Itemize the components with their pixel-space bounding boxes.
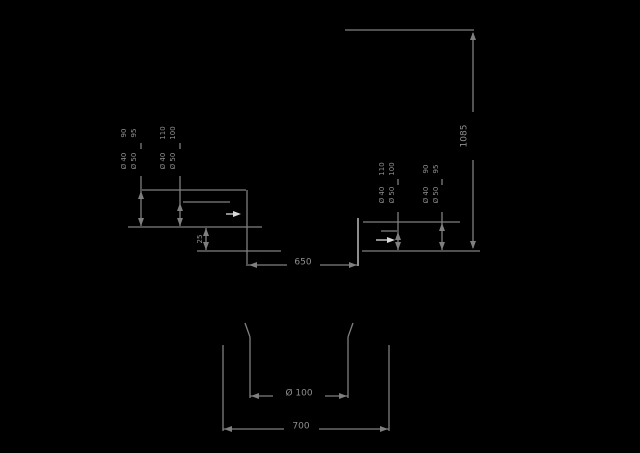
leader-arrow-left-icon bbox=[233, 211, 241, 217]
hole-right-extension-tick bbox=[348, 323, 353, 337]
leader-arrow-right-icon bbox=[387, 237, 395, 243]
right-inner-height-b: 100 bbox=[388, 162, 396, 175]
left-outer-height-a: 90 bbox=[120, 129, 128, 138]
left-inner-height-b: 100 bbox=[169, 126, 177, 139]
left-outer-arrow-bottom-icon bbox=[138, 218, 144, 226]
right-inner-diameter-b: Ø 50 bbox=[388, 187, 396, 204]
hole-arrow-right-icon bbox=[339, 393, 347, 399]
overall-dim-arrow-bottom-icon bbox=[470, 241, 476, 249]
overall-dim-arrow-top-icon bbox=[470, 32, 476, 40]
right-outer-height-a: 90 bbox=[422, 165, 430, 174]
step-height-label: 25 bbox=[196, 235, 204, 244]
base-width-label: 700 bbox=[292, 422, 309, 432]
right-inner-arrow-top-icon bbox=[395, 232, 401, 240]
base-arrow-right-icon bbox=[380, 426, 388, 432]
hole-arrow-left-icon bbox=[251, 393, 259, 399]
technical-drawing-canvas: 1085650Ø 100700259095Ø 40Ø 50110100Ø 40Ø… bbox=[0, 0, 640, 453]
right-outer-arrow-top-icon bbox=[439, 223, 445, 231]
left-outer-diameter-b: Ø 50 bbox=[130, 153, 138, 170]
hole-left-extension-tick bbox=[245, 323, 250, 337]
right-outer-diameter-a: Ø 40 bbox=[422, 187, 430, 204]
right-inner-height-a: 110 bbox=[378, 162, 386, 175]
overall-height-label: 1085 bbox=[460, 125, 470, 148]
recess-arrow-right-icon bbox=[349, 262, 357, 268]
left-inner-height-a: 110 bbox=[159, 126, 167, 139]
left-outer-height-b: 95 bbox=[130, 129, 138, 138]
left-inner-diameter-b: Ø 50 bbox=[169, 153, 177, 170]
left-inner-arrow-bottom-icon bbox=[177, 218, 183, 226]
right-outer-arrow-bottom-icon bbox=[439, 242, 445, 250]
recess-arrow-left-icon bbox=[249, 262, 257, 268]
left-outer-diameter-a: Ø 40 bbox=[120, 153, 128, 170]
left-inner-arrow-top-icon bbox=[177, 203, 183, 211]
hole-diameter-label: Ø 100 bbox=[285, 388, 312, 399]
left-outer-arrow-top-icon bbox=[138, 191, 144, 199]
recess-width-label: 650 bbox=[294, 258, 311, 268]
right-outer-diameter-b: Ø 50 bbox=[432, 187, 440, 204]
right-inner-arrow-bottom-icon bbox=[395, 242, 401, 250]
drawing-svg: 1085650Ø 100700259095Ø 40Ø 50110100Ø 40Ø… bbox=[0, 0, 640, 453]
base-arrow-left-icon bbox=[224, 426, 232, 432]
right-inner-diameter-a: Ø 40 bbox=[378, 187, 386, 204]
right-outer-height-b: 95 bbox=[432, 165, 440, 174]
left-inner-diameter-a: Ø 40 bbox=[159, 153, 167, 170]
